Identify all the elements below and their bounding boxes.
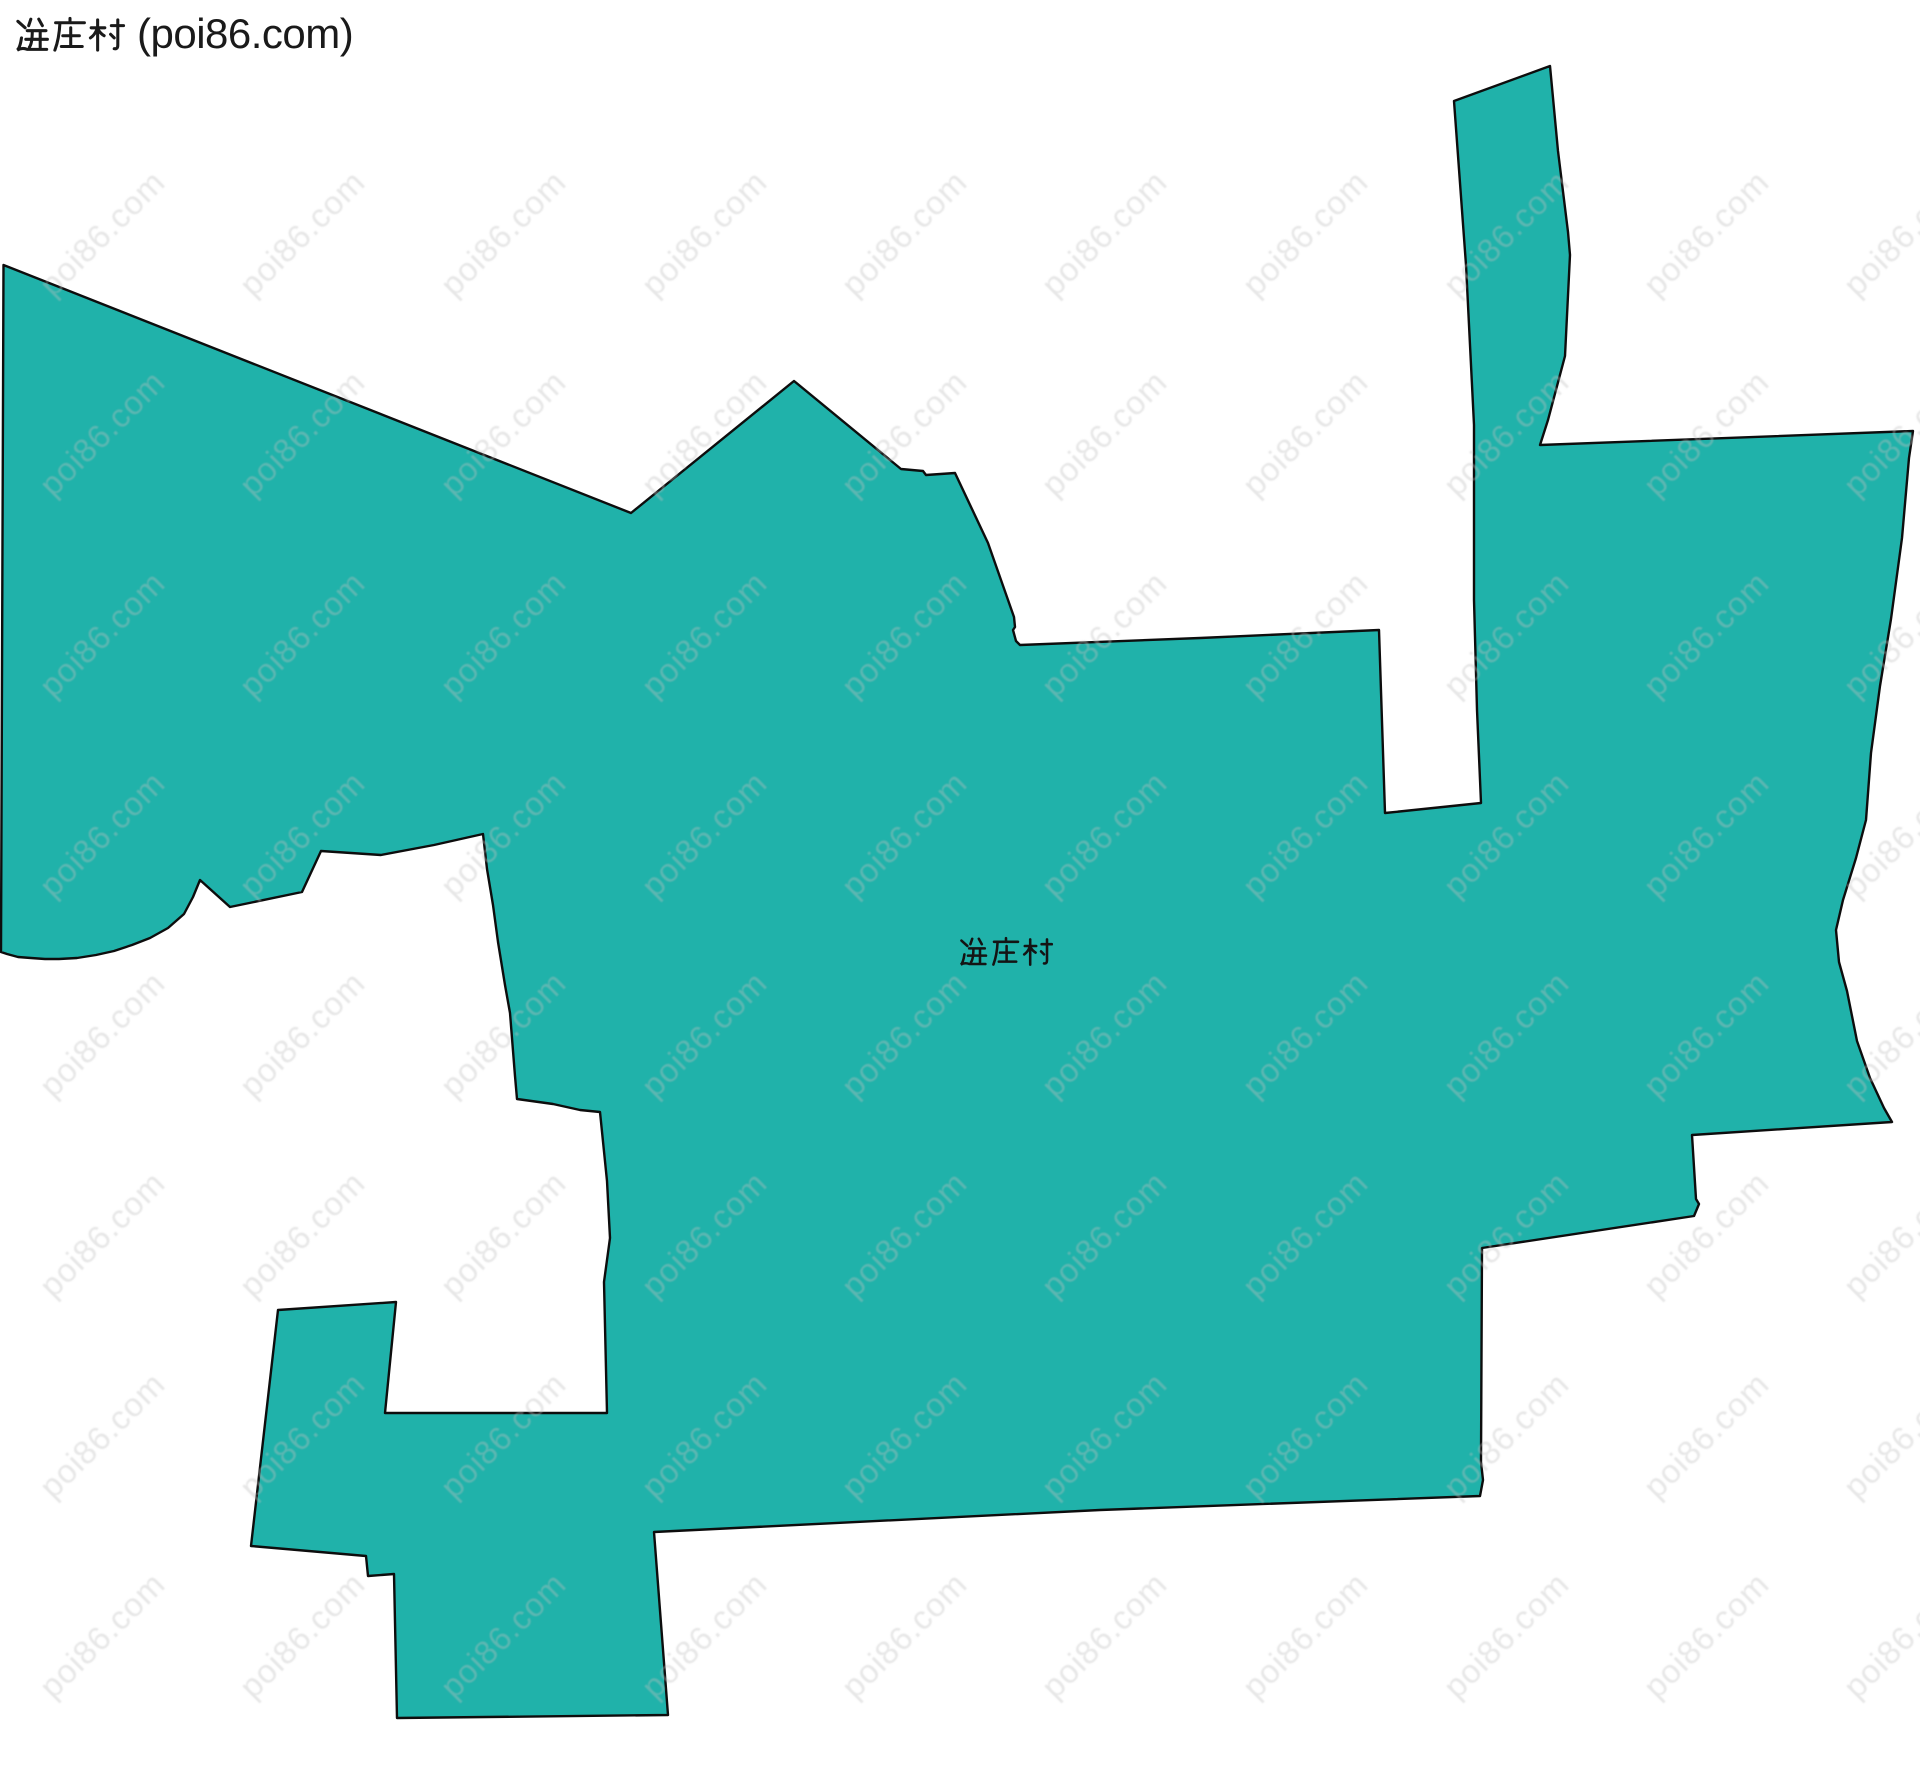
svg-text:poi86.com: poi86.com xyxy=(32,163,172,303)
svg-text:poi86.com: poi86.com xyxy=(1235,363,1375,503)
svg-text:poi86.com: poi86.com xyxy=(1636,163,1776,303)
svg-text:poi86.com: poi86.com xyxy=(232,163,372,303)
svg-text:poi86.com: poi86.com xyxy=(1836,1164,1920,1304)
svg-text:poi86.com: poi86.com xyxy=(32,1365,172,1505)
svg-text:poi86.com: poi86.com xyxy=(32,1565,172,1705)
svg-text:poi86.com: poi86.com xyxy=(232,1565,372,1705)
svg-text:poi86.com: poi86.com xyxy=(1436,1565,1576,1705)
svg-text:poi86.com: poi86.com xyxy=(1235,1565,1375,1705)
svg-text:poi86.com: poi86.com xyxy=(1636,1565,1776,1705)
svg-text:poi86.com: poi86.com xyxy=(433,1164,573,1304)
svg-text:poi86.com: poi86.com xyxy=(1034,1565,1174,1705)
svg-text:poi86.com: poi86.com xyxy=(1034,363,1174,503)
svg-text:poi86.com: poi86.com xyxy=(1034,163,1174,303)
svg-text:poi86.com: poi86.com xyxy=(834,1565,974,1705)
svg-text:poi86.com: poi86.com xyxy=(1836,163,1920,303)
svg-text:poi86.com: poi86.com xyxy=(634,163,774,303)
svg-text:poi86.com: poi86.com xyxy=(433,163,573,303)
svg-text:poi86.com: poi86.com xyxy=(232,1164,372,1304)
svg-text:poi86.com: poi86.com xyxy=(232,964,372,1104)
svg-text:poi86.com: poi86.com xyxy=(32,964,172,1104)
svg-text:(poi86.com): (poi86.com) xyxy=(137,10,353,57)
svg-text:poi86.com: poi86.com xyxy=(1836,1565,1920,1705)
svg-text:poi86.com: poi86.com xyxy=(834,163,974,303)
svg-text:poi86.com: poi86.com xyxy=(32,1164,172,1304)
svg-text:poi86.com: poi86.com xyxy=(1836,1365,1920,1505)
svg-text:poi86.com: poi86.com xyxy=(1235,163,1375,303)
svg-text:poi86.com: poi86.com xyxy=(1636,1365,1776,1505)
